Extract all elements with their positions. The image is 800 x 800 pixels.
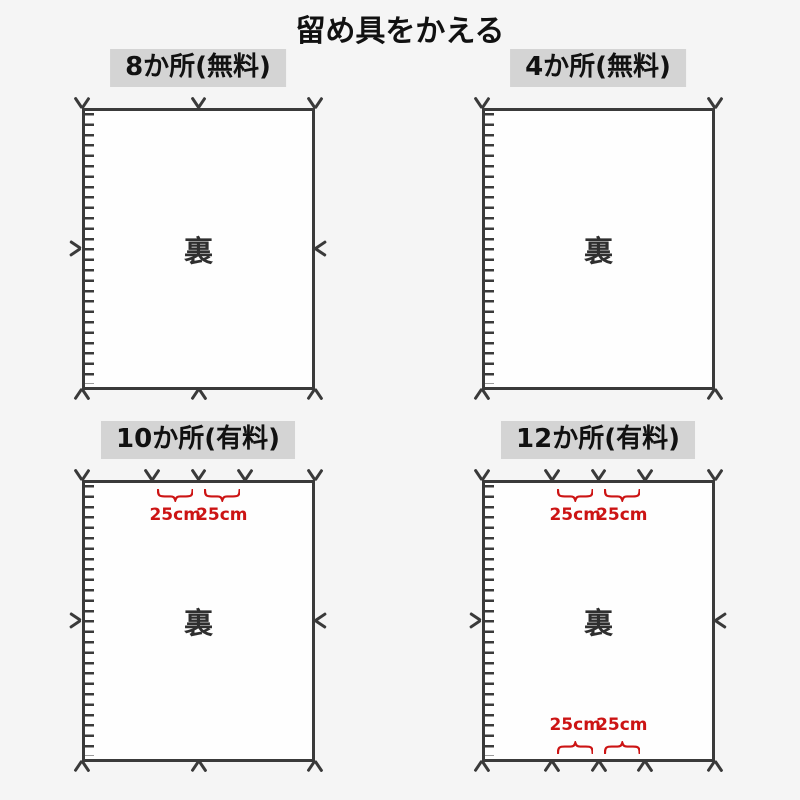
fastener-arrow-left-icon — [715, 614, 728, 628]
back-side-label: 裏 — [584, 600, 613, 642]
back-side-label: 裏 — [184, 228, 213, 270]
fastener-arrow-right-icon — [69, 614, 82, 628]
fold-edge-ticks — [85, 485, 94, 756]
fold-edge-ticks — [485, 485, 494, 756]
fastener-arrow-left-icon — [315, 242, 328, 256]
fold-edge-ticks — [85, 113, 94, 384]
panel-title-8-free: 8か所(無料) — [110, 49, 286, 87]
futon-back-outline-12-paid: 裏 — [482, 480, 715, 762]
fastener-arrow-right-icon — [69, 242, 82, 256]
fastener-change-diagram: 留め具をかえる 8か所(無料) 4か所(無料) 10か所(有料) 12か所(有料… — [0, 0, 800, 800]
fold-edge-ticks — [485, 113, 494, 384]
back-side-label: 裏 — [584, 228, 613, 270]
back-side-label: 裏 — [184, 600, 213, 642]
futon-back-outline-8-free: 裏 — [82, 108, 315, 390]
panel-title-4-free: 4か所(無料) — [510, 49, 686, 87]
page-title: 留め具をかえる — [0, 6, 800, 50]
fastener-arrow-right-icon — [469, 614, 482, 628]
futon-back-outline-4-free: 裏 — [482, 108, 715, 390]
fastener-arrow-left-icon — [315, 614, 328, 628]
panel-title-12-paid: 12か所(有料) — [501, 421, 695, 459]
panel-title-10-paid: 10か所(有料) — [101, 421, 295, 459]
futon-back-outline-10-paid: 裏 — [82, 480, 315, 762]
